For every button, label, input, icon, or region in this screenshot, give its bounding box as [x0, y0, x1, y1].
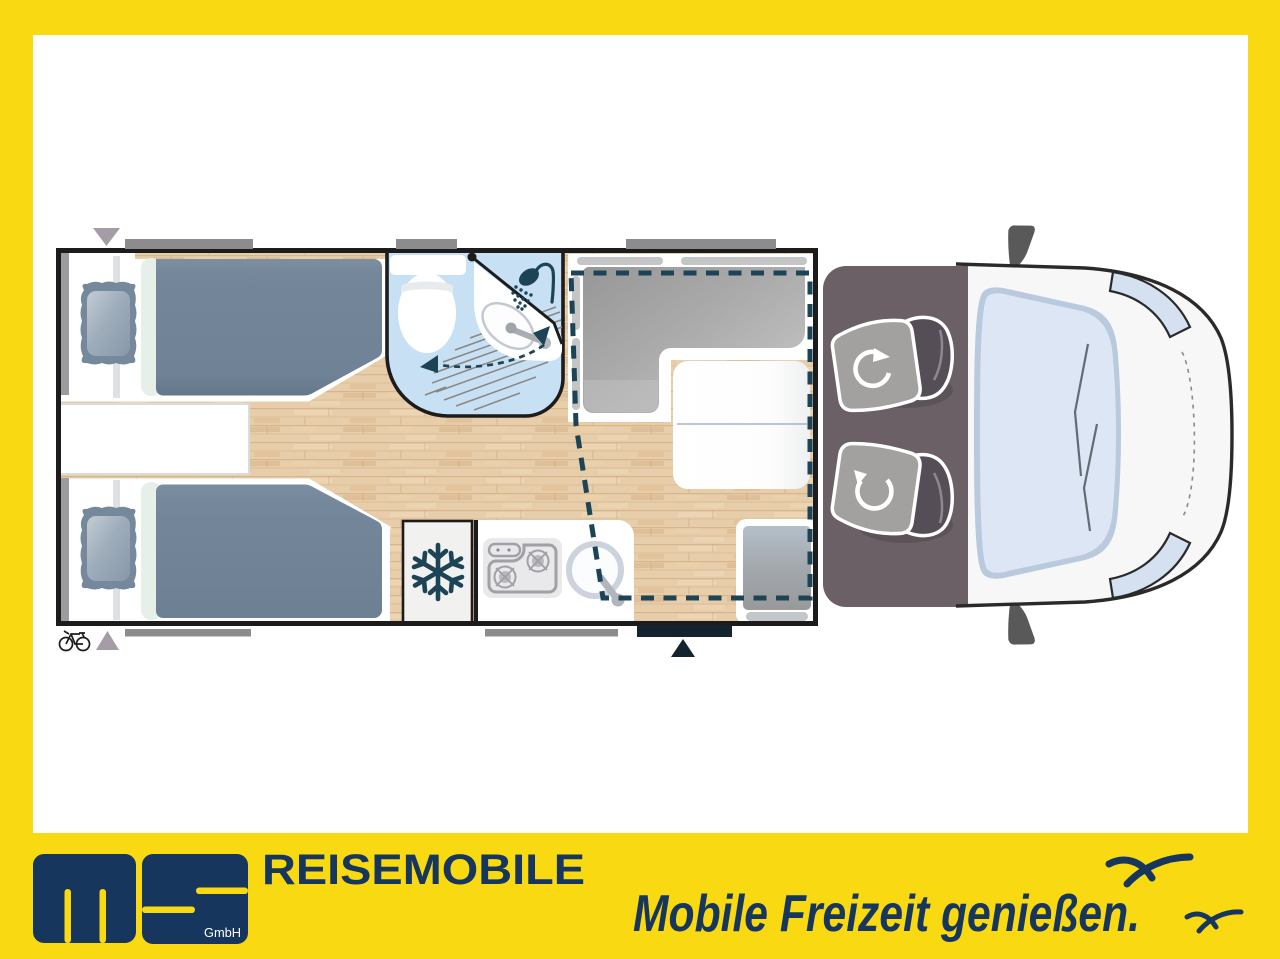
svg-text:GmbH: GmbH [204, 925, 241, 940]
svg-text:REISEMOBILE: REISEMOBILE [262, 847, 585, 894]
svg-text:Mobile Freizeit genießen.: Mobile Freizeit genießen. [633, 885, 1140, 943]
